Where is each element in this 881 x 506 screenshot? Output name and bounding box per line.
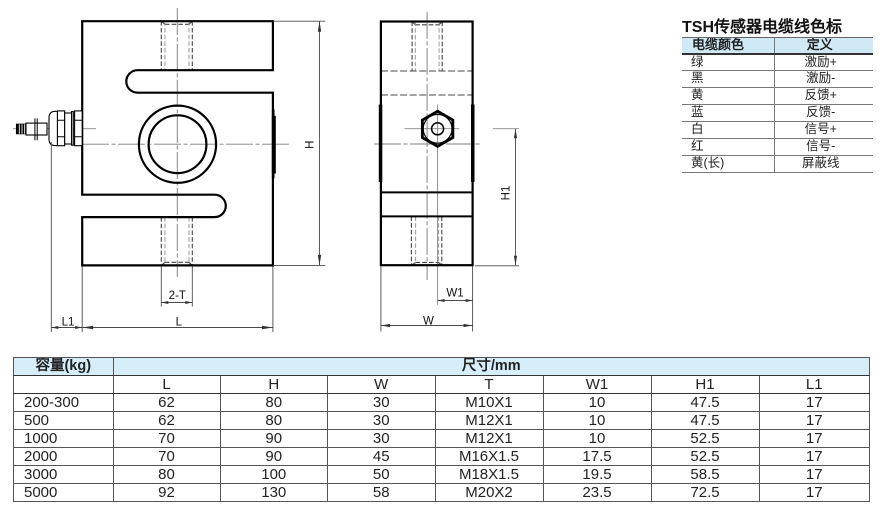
svg-text:L1: L1: [62, 316, 75, 328]
svg-text:2-T: 2-T: [169, 290, 186, 302]
svg-text:W: W: [423, 315, 434, 327]
svg-text:W1: W1: [446, 288, 463, 300]
svg-text:H: H: [305, 141, 317, 149]
svg-text:H1: H1: [501, 186, 513, 201]
svg-text:L: L: [176, 316, 183, 328]
